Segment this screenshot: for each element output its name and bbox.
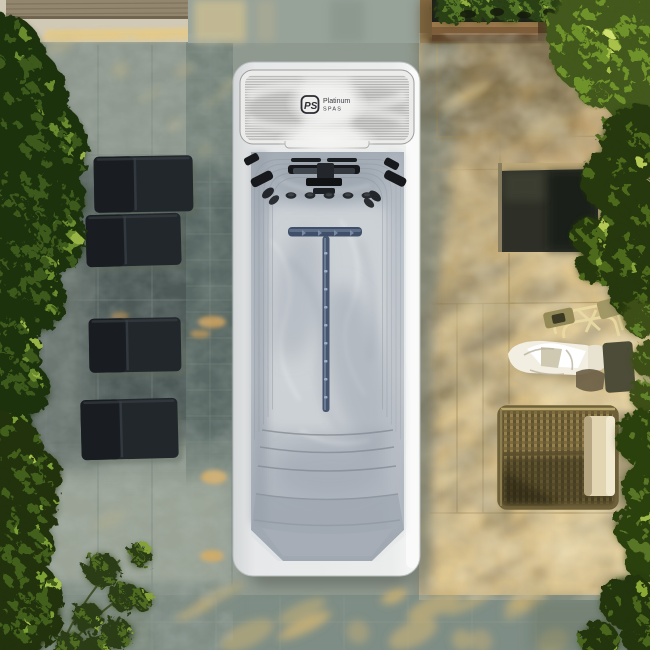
svg-text:PS: PS (304, 101, 318, 112)
svg-text:Platinum: Platinum (323, 98, 350, 105)
svg-text:SPAS: SPAS (323, 107, 342, 113)
